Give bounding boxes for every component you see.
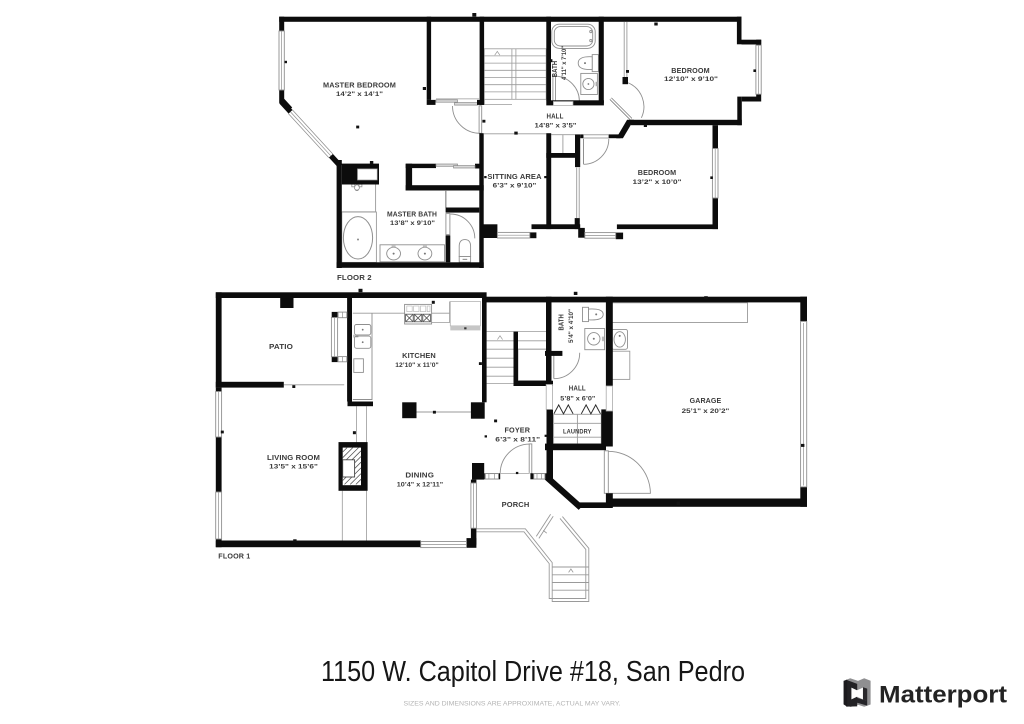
svg-text:KITCHEN: KITCHEN — [402, 353, 436, 360]
svg-text:12’10" x 11’0": 12’10" x 11’0" — [395, 362, 438, 369]
svg-text:Matterport: Matterport — [879, 682, 1007, 709]
svg-text:25’1" x 20’2": 25’1" x 20’2" — [682, 408, 730, 415]
svg-text:14’2" x 14’1": 14’2" x 14’1" — [336, 91, 383, 98]
svg-text:BATH: BATH — [559, 314, 566, 331]
svg-text:6’3" x 8’11": 6’3" x 8’11" — [495, 436, 540, 443]
svg-text:SITTING AREA: SITTING AREA — [487, 174, 541, 181]
svg-text:14’8" x 3’5": 14’8" x 3’5" — [535, 122, 577, 129]
svg-text:5’8" x 6’0": 5’8" x 6’0" — [560, 396, 595, 403]
svg-text:DINING: DINING — [405, 473, 434, 480]
svg-text:1150 W. Capitol Drive #18, San: 1150 W. Capitol Drive #18, San Pedro — [321, 656, 745, 688]
svg-text:BEDROOM: BEDROOM — [671, 68, 710, 75]
svg-text:13’8" x 9’10": 13’8" x 9’10" — [390, 220, 435, 227]
svg-text:FLOOR 1: FLOOR 1 — [218, 551, 250, 560]
svg-text:MASTER BEDROOM: MASTER BEDROOM — [323, 83, 396, 90]
svg-text:HALL: HALL — [547, 114, 565, 121]
svg-text:PORCH: PORCH — [502, 502, 530, 509]
svg-text:BEDROOM: BEDROOM — [638, 170, 677, 177]
svg-text:6’3" x 9’10": 6’3" x 9’10" — [493, 183, 537, 190]
svg-text:12’10" x 9’10": 12’10" x 9’10" — [664, 76, 718, 83]
svg-text:HALL: HALL — [569, 386, 587, 393]
svg-text:MASTER BATH: MASTER BATH — [387, 212, 437, 219]
svg-text:FOYER: FOYER — [505, 428, 531, 435]
svg-text:FLOOR 2: FLOOR 2 — [337, 273, 372, 282]
svg-text:13’2" x 10’0": 13’2" x 10’0" — [633, 179, 682, 186]
svg-text:BATH: BATH — [552, 61, 559, 78]
svg-text:LAUNDRY: LAUNDRY — [563, 429, 592, 436]
svg-text:LIVING ROOM: LIVING ROOM — [267, 455, 320, 462]
svg-text:GARAGE: GARAGE — [690, 398, 722, 405]
svg-text:PATIO: PATIO — [269, 344, 293, 351]
svg-text:4’11" x 7’10": 4’11" x 7’10" — [561, 46, 568, 80]
svg-text:5’4" x 4’10": 5’4" x 4’10" — [568, 309, 575, 343]
svg-text:SIZES AND DIMENSIONS ARE APPRO: SIZES AND DIMENSIONS ARE APPROXIMATE, AC… — [404, 701, 621, 708]
svg-text:10’4" x 12’11": 10’4" x 12’11" — [397, 481, 443, 488]
svg-text:13’5" x 15’6": 13’5" x 15’6" — [269, 464, 318, 471]
